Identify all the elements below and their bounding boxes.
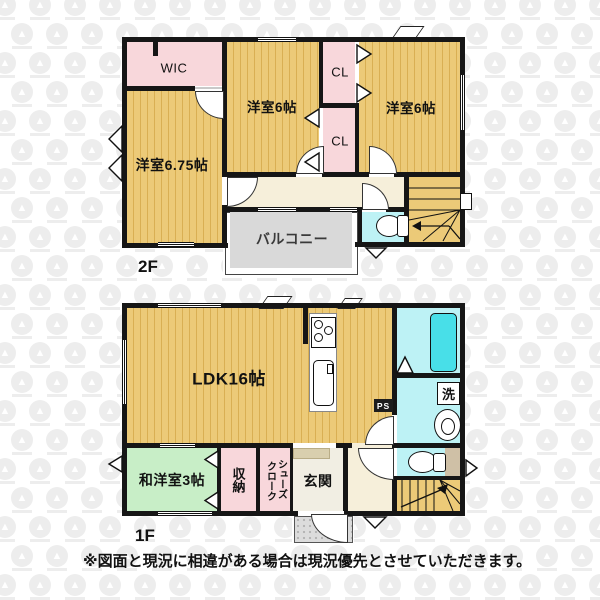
- watermark-logo: ▲: [534, 139, 560, 171]
- watermark-logo: ▲: [552, 52, 578, 84]
- folding-door-icon: [204, 450, 219, 469]
- closet-label-shoes-left: クローク: [263, 461, 278, 501]
- watermark-logo: ▲: [517, 342, 543, 374]
- watermark-logo: ▲: [0, 52, 18, 84]
- watermark-logo: ▲: [184, 255, 210, 287]
- watermark-logo: ▲: [0, 516, 18, 548]
- watermark-logo: ▲: [534, 313, 560, 345]
- watermark-logo: ▲: [517, 458, 543, 490]
- laundry-pan: 洗: [437, 382, 460, 405]
- watermark-logo: ▲: [97, 52, 123, 84]
- window-marker-icon: [108, 154, 123, 182]
- wall: [319, 103, 359, 108]
- watermark-logo: ▲: [44, 313, 70, 345]
- watermark-logo: ▲: [517, 400, 543, 432]
- wall: [319, 42, 323, 103]
- wash-basin-bowl: [441, 418, 455, 435]
- wall: [460, 303, 465, 516]
- wall: [127, 443, 160, 448]
- opening-line: [195, 87, 222, 89]
- watermark-logo: ▲: [0, 168, 18, 200]
- watermark-logo: ▲: [534, 197, 560, 229]
- wall: [355, 108, 359, 172]
- burner: [314, 320, 323, 329]
- stairs-treads: [409, 177, 460, 242]
- watermark-logo: ▲: [499, 313, 525, 345]
- folding-door-icon: [304, 152, 320, 172]
- watermark-logo: ▲: [9, 81, 35, 113]
- sliding-door-marker: [160, 443, 195, 448]
- watermark-logo: ▲: [499, 197, 525, 229]
- watermark-logo: ▲: [44, 197, 70, 229]
- watermark-logo: ▲: [482, 226, 508, 258]
- watermark-logo: ▲: [534, 23, 560, 55]
- watermark-logo: ▲: [9, 487, 35, 519]
- watermark-logo: ▲: [44, 545, 70, 577]
- watermark-logo: ▲: [499, 487, 525, 519]
- watermark-logo: ▲: [587, 168, 600, 200]
- watermark-logo: ▲: [9, 23, 35, 55]
- watermark-logo: ▲: [499, 139, 525, 171]
- watermark-logo: ▲: [464, 429, 490, 461]
- watermark-logo: ▲: [44, 81, 70, 113]
- window-marker: [158, 303, 221, 308]
- balcony-door-marker: [258, 207, 296, 212]
- watermark-logo: ▲: [44, 429, 70, 461]
- watermark-logo: ▲: [569, 429, 595, 461]
- watermark-logo: ▲: [587, 226, 600, 258]
- watermark-logo: ▲: [272, 574, 298, 600]
- watermark-logo: ▲: [534, 487, 560, 519]
- watermark-logo: ▲: [482, 342, 508, 374]
- watermark-logo: ▲: [79, 429, 105, 461]
- watermark-logo: ▲: [482, 284, 508, 316]
- toilet-tank: [433, 453, 446, 472]
- room-label-wic: WIC: [161, 61, 188, 76]
- watermark-logo: ▲: [517, 52, 543, 84]
- watermark-logo: ▲: [464, 81, 490, 113]
- watermark-logo: ▲: [114, 255, 140, 287]
- watermark-logo: ▲: [587, 516, 600, 548]
- watermark-logo: ▲: [0, 574, 18, 600]
- window-marker-icon: [363, 516, 387, 529]
- watermark-logo: ▲: [0, 110, 18, 142]
- closet-label-cl-top: CL: [331, 65, 349, 80]
- watermark-logo: ▲: [499, 255, 525, 287]
- faucet: [327, 364, 333, 374]
- window-marker: [158, 242, 194, 247]
- watermark-logo: ▲: [517, 110, 543, 142]
- watermark-logo: ▲: [97, 342, 123, 374]
- watermark-logo: ▲: [534, 371, 560, 403]
- watermark-logo: ▲: [0, 400, 18, 432]
- watermark-logo: ▲: [482, 516, 508, 548]
- watermark-logo: ▲: [499, 429, 525, 461]
- watermark-logo: ▲: [44, 487, 70, 519]
- watermark-logo: ▲: [552, 342, 578, 374]
- folding-door-icon: [304, 108, 320, 128]
- pipe-space: PS: [374, 399, 393, 412]
- window-marker: [460, 75, 465, 130]
- watermark-logo: ▲: [587, 400, 600, 432]
- window-marker: [258, 37, 296, 42]
- watermark-logo: ▲: [62, 110, 88, 142]
- watermark-logo: ▲: [534, 545, 560, 577]
- wall: [127, 86, 195, 91]
- watermark-logo: ▲: [517, 516, 543, 548]
- bathtub: [430, 313, 457, 372]
- folding-door-icon: [204, 491, 219, 510]
- bath-folding-door-icon: [396, 356, 414, 374]
- watermark-logo: ▲: [552, 168, 578, 200]
- watermark-logo: ▲: [9, 197, 35, 229]
- balcony-door-marker: [330, 207, 357, 212]
- watermark-logo: ▲: [79, 255, 105, 287]
- watermark-logo: ▲: [412, 516, 438, 548]
- watermark-logo: ▲: [62, 342, 88, 374]
- watermark-logo: ▲: [97, 516, 123, 548]
- watermark-logo: ▲: [394, 255, 420, 287]
- watermark-logo: ▲: [79, 371, 105, 403]
- window-marker-icon: [108, 455, 123, 473]
- watermark-logo: ▲: [569, 313, 595, 345]
- watermark-logo: ▲: [307, 574, 333, 600]
- wall: [460, 37, 465, 247]
- watermark-logo: ▲: [27, 458, 53, 490]
- watermark-logo: ▲: [0, 458, 18, 490]
- watermark-logo: ▲: [534, 255, 560, 287]
- wall: [290, 443, 293, 511]
- watermark-logo: ▲: [27, 226, 53, 258]
- watermark-logo: ▲: [202, 516, 228, 548]
- watermark-logo: ▲: [27, 284, 53, 316]
- watermark-logo: ▲: [552, 458, 578, 490]
- watermark-logo: ▲: [79, 313, 105, 345]
- watermark-logo: ▲: [587, 52, 600, 84]
- balcony-label: バルコニー: [256, 229, 328, 249]
- wall: [195, 443, 292, 448]
- watermark-logo: ▲: [62, 516, 88, 548]
- watermark-logo: ▲: [62, 458, 88, 490]
- room-label-675: 洋室6.75帖: [136, 155, 209, 175]
- watermark-logo: ▲: [482, 110, 508, 142]
- watermark-logo: ▲: [9, 545, 35, 577]
- window-marker: [460, 193, 472, 210]
- floorplan-canvas: ▲▲▲▲▲▲▲▲▲▲▲▲▲▲▲▲▲▲▲▲▲▲▲▲▲▲▲▲▲▲▲▲▲▲▲▲▲▲▲▲…: [0, 0, 600, 600]
- watermark-logo: ▲: [429, 255, 455, 287]
- watermark-logo: ▲: [44, 255, 70, 287]
- watermark-logo: ▲: [9, 139, 35, 171]
- burner: [324, 326, 333, 335]
- watermark-logo: ▲: [27, 52, 53, 84]
- watermark-logo: ▲: [359, 255, 385, 287]
- watermark-logo: ▲: [44, 139, 70, 171]
- watermark-logo: ▲: [62, 168, 88, 200]
- watermark-logo: ▲: [517, 226, 543, 258]
- watermark-logo: ▲: [569, 371, 595, 403]
- watermark-logo: ▲: [97, 284, 123, 316]
- stairs-treads: [393, 480, 460, 511]
- wall: [122, 303, 127, 516]
- watermark-logo: ▲: [62, 226, 88, 258]
- watermark-logo: ▲: [482, 400, 508, 432]
- wall-stub: [153, 42, 158, 56]
- watermark-logo: ▲: [97, 226, 123, 258]
- watermark-logo: ▲: [27, 516, 53, 548]
- watermark-logo: ▲: [552, 110, 578, 142]
- window-marker: [122, 340, 127, 404]
- room-label-6-mid: 洋室6帖: [247, 96, 297, 116]
- disclaimer-text: ※図面と現況に相違がある場合は現況優先とさせていただきます。: [83, 550, 531, 571]
- watermark-logo: ▲: [27, 110, 53, 142]
- watermark-logo: ▲: [447, 516, 473, 548]
- wall: [343, 443, 348, 511]
- window-marker-icon: [365, 247, 387, 259]
- closet-label-storage: 収納: [229, 467, 248, 493]
- watermark-logo: ▲: [587, 574, 600, 600]
- watermark-logo: ▲: [552, 284, 578, 316]
- watermark-logo: ▲: [587, 458, 600, 490]
- watermark-logo: ▲: [62, 400, 88, 432]
- watermark-logo: ▲: [552, 574, 578, 600]
- watermark-logo: ▲: [499, 371, 525, 403]
- watermark-logo: ▲: [27, 342, 53, 374]
- watermark-logo: ▲: [62, 52, 88, 84]
- window-marker-icon: [108, 125, 123, 153]
- watermark-logo: ▲: [499, 23, 525, 55]
- watermark-logo: ▲: [464, 313, 490, 345]
- watermark-logo: ▲: [79, 487, 105, 519]
- watermark-logo: ▲: [237, 574, 263, 600]
- watermark-logo: ▲: [44, 371, 70, 403]
- watermark-logo: ▲: [377, 574, 403, 600]
- watermark-logo: ▲: [464, 255, 490, 287]
- watermark-logo: ▲: [79, 197, 105, 229]
- watermark-logo: ▲: [27, 168, 53, 200]
- watermark-logo: ▲: [569, 487, 595, 519]
- watermark-logo: ▲: [44, 23, 70, 55]
- burner: [314, 333, 323, 342]
- floor-label-1f: 1F: [135, 526, 155, 546]
- watermark-logo: ▲: [464, 487, 490, 519]
- watermark-logo: ▲: [569, 23, 595, 55]
- room-label-tatami: 和洋室3帖: [139, 470, 205, 490]
- watermark-logo: ▲: [587, 342, 600, 374]
- watermark-logo: ▲: [237, 516, 263, 548]
- watermark-logo: ▲: [0, 342, 18, 374]
- toilet-counter: [445, 448, 460, 476]
- floor-label-2f: 2F: [138, 257, 158, 277]
- watermark-logo: ▲: [0, 226, 18, 258]
- toilet-tank: [397, 215, 409, 237]
- watermark-logo: ▲: [534, 429, 560, 461]
- closet-label-cl-bottom: CL: [331, 134, 349, 149]
- watermark-logo: ▲: [412, 574, 438, 600]
- watermark-logo: ▲: [62, 284, 88, 316]
- watermark-logo: ▲: [27, 574, 53, 600]
- watermark-logo: ▲: [167, 574, 193, 600]
- watermark-logo: ▲: [342, 574, 368, 600]
- watermark-logo: ▲: [517, 574, 543, 600]
- folding-door-icon: [356, 44, 372, 64]
- watermark-logo: ▲: [482, 458, 508, 490]
- wall: [256, 443, 260, 511]
- watermark-logo: ▲: [132, 574, 158, 600]
- watermark-logo: ▲: [79, 23, 105, 55]
- watermark-logo: ▲: [0, 284, 18, 316]
- wall-stub-kitchen: [303, 308, 308, 344]
- watermark-logo: ▲: [9, 429, 35, 461]
- watermark-logo: ▲: [534, 81, 560, 113]
- watermark-logo: ▲: [569, 255, 595, 287]
- stairs-arrow: [412, 221, 421, 231]
- wall: [358, 207, 362, 242]
- watermark-logo: ▲: [27, 400, 53, 432]
- watermark-logo: ▲: [569, 545, 595, 577]
- watermark-logo: ▲: [482, 168, 508, 200]
- wall: [392, 443, 460, 448]
- room-label-6-right: 洋室6帖: [386, 97, 436, 117]
- watermark-logo: ▲: [9, 371, 35, 403]
- watermark-logo: ▲: [569, 81, 595, 113]
- watermark-logo: ▲: [167, 516, 193, 548]
- watermark-logo: ▲: [97, 574, 123, 600]
- watermark-logo: ▲: [482, 52, 508, 84]
- window-marker: [158, 511, 212, 516]
- watermark-logo: ▲: [9, 255, 35, 287]
- watermark-logo: ▲: [79, 81, 105, 113]
- watermark-logo: ▲: [552, 226, 578, 258]
- watermark-logo: ▲: [97, 400, 123, 432]
- window-marker-icon: [465, 459, 478, 477]
- watermark-logo: ▲: [569, 139, 595, 171]
- watermark-logo: ▲: [464, 23, 490, 55]
- watermark-logo: ▲: [202, 574, 228, 600]
- watermark-logo: ▲: [517, 168, 543, 200]
- watermark-logo: ▲: [517, 284, 543, 316]
- watermark-logo: ▲: [79, 139, 105, 171]
- room-label-ldk: LDK16帖: [192, 365, 266, 390]
- watermark-logo: ▲: [464, 371, 490, 403]
- watermark-logo: ▲: [464, 139, 490, 171]
- watermark-logo: ▲: [587, 110, 600, 142]
- watermark-logo: ▲: [447, 574, 473, 600]
- watermark-logo: ▲: [62, 574, 88, 600]
- watermark-logo: ▲: [552, 400, 578, 432]
- watermark-logo: ▲: [569, 197, 595, 229]
- watermark-logo: ▲: [499, 81, 525, 113]
- watermark-logo: ▲: [552, 516, 578, 548]
- wall: [322, 172, 369, 177]
- folding-door-icon: [356, 83, 372, 103]
- watermark-logo: ▲: [587, 284, 600, 316]
- room-label-entrance: 玄関: [304, 471, 333, 491]
- watermark-logo: ▲: [482, 574, 508, 600]
- entrance-step: [293, 448, 330, 459]
- watermark-logo: ▲: [9, 313, 35, 345]
